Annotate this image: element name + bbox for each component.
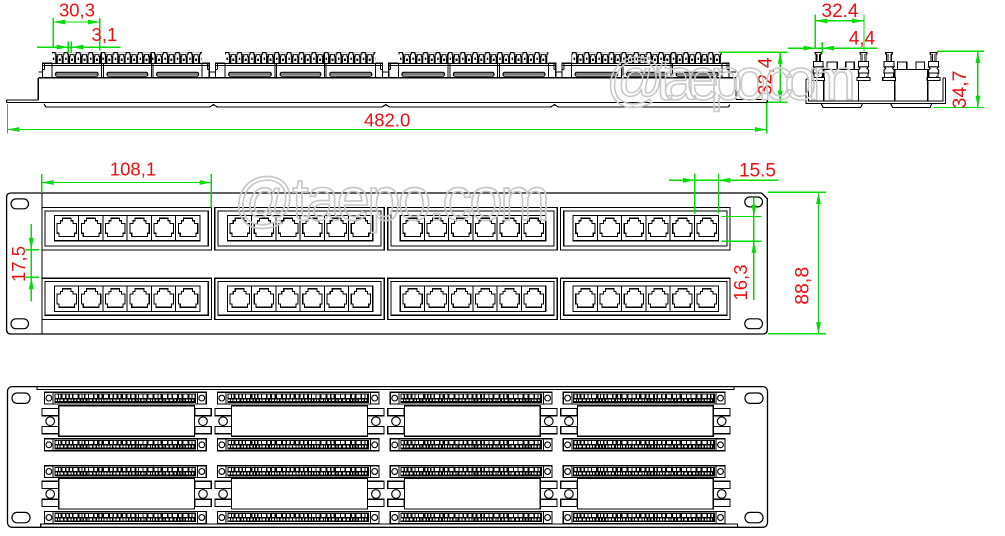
svg-text:@taepo.com: @taepo.com (234, 166, 550, 233)
svg-text:108,1: 108,1 (110, 159, 156, 180)
svg-text:482.0: 482.0 (364, 110, 410, 131)
svg-text:3,1: 3,1 (92, 24, 118, 45)
svg-text:15.5: 15.5 (739, 161, 776, 182)
svg-text:4,4: 4,4 (849, 29, 876, 50)
svg-text:@taepo.com: @taepo.com (606, 48, 856, 113)
svg-text:32.4: 32.4 (822, 1, 859, 22)
svg-text:88,8: 88,8 (792, 267, 814, 305)
svg-text:17,5: 17,5 (8, 246, 29, 282)
svg-text:30,3: 30,3 (59, 0, 95, 21)
svg-text:16,3: 16,3 (730, 264, 751, 300)
svg-text:34,7: 34,7 (949, 71, 971, 109)
